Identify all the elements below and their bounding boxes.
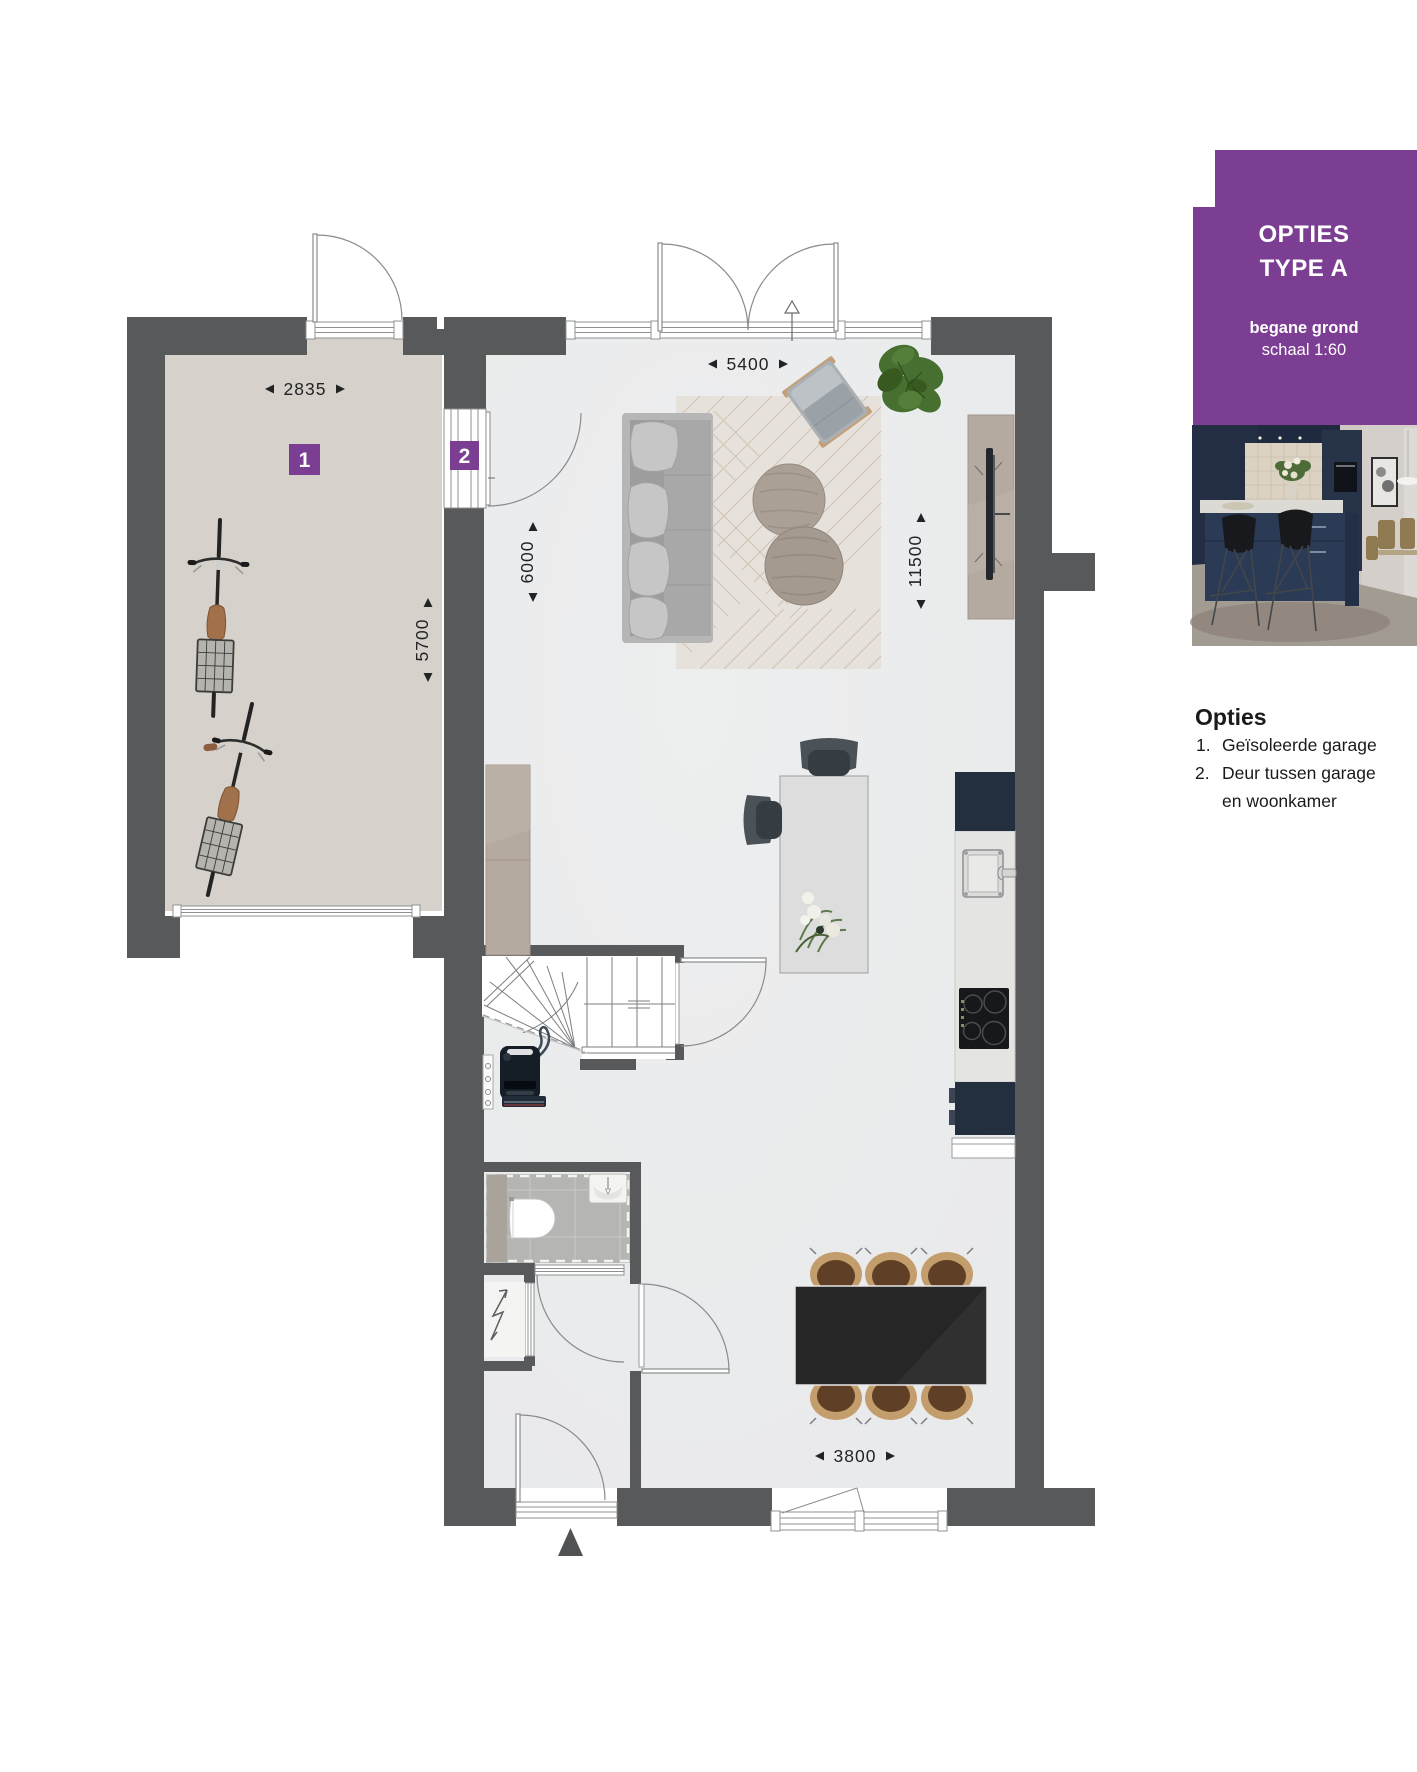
- svg-text:2.: 2.: [1195, 763, 1210, 783]
- svg-text:Deur tussen garage: Deur tussen garage: [1222, 763, 1376, 783]
- svg-text:6000: 6000: [517, 541, 537, 584]
- svg-text:3800: 3800: [834, 1446, 877, 1466]
- svg-text:begane grond: begane grond: [1249, 319, 1358, 337]
- svg-text:5700: 5700: [412, 619, 432, 662]
- svg-text:1.: 1.: [1196, 735, 1211, 755]
- svg-text:11500: 11500: [905, 535, 925, 587]
- svg-text:5400: 5400: [727, 354, 770, 374]
- svg-text:TYPE A: TYPE A: [1260, 255, 1349, 282]
- svg-text:2835: 2835: [284, 379, 327, 399]
- svg-text:Opties: Opties: [1195, 704, 1267, 730]
- svg-text:2: 2: [459, 445, 471, 468]
- svg-text:en woonkamer: en woonkamer: [1222, 791, 1337, 811]
- svg-text:Geïsoleerde garage: Geïsoleerde garage: [1222, 735, 1377, 755]
- svg-text:1: 1: [299, 449, 311, 472]
- svg-text:schaal 1:60: schaal 1:60: [1262, 341, 1346, 359]
- svg-text:OPTIES: OPTIES: [1258, 221, 1349, 248]
